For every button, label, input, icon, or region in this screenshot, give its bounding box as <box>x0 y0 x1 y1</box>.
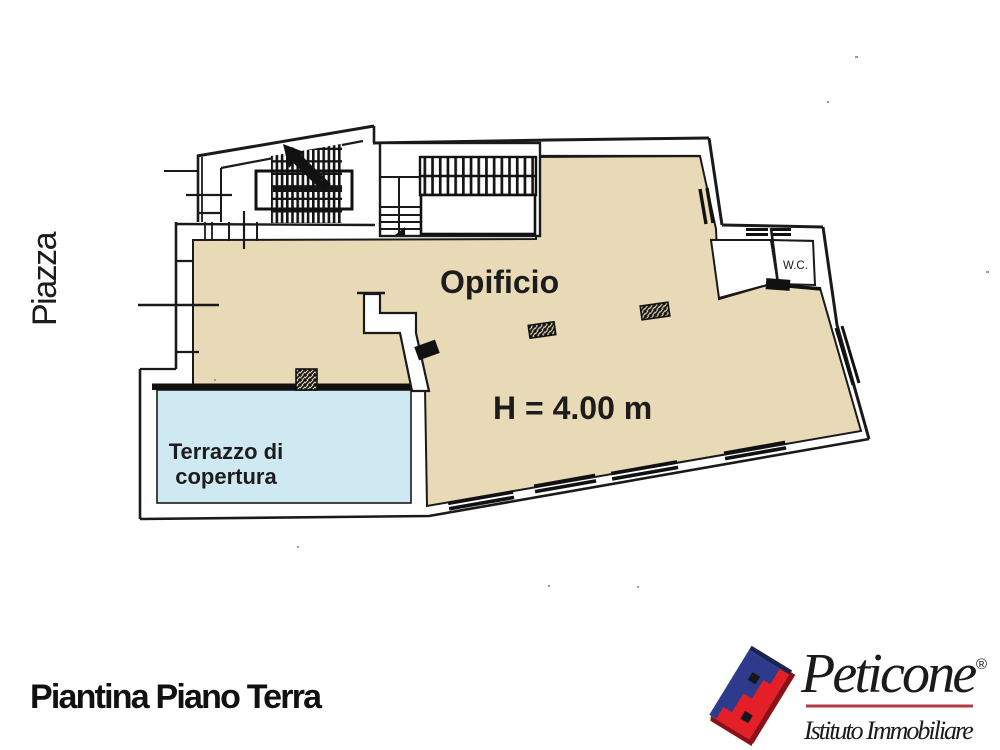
svg-text:copertura: copertura <box>175 464 277 489</box>
svg-text:®: ® <box>976 656 987 673</box>
svg-text:Piantina Piano Terra: Piantina Piano Terra <box>30 678 323 716</box>
svg-text:Istituto Immobiliare: Istituto Immobiliare <box>803 716 973 745</box>
svg-text:Piazza: Piazza <box>26 231 64 326</box>
svg-text:H = 4.00 m: H = 4.00 m <box>493 390 652 426</box>
svg-text:Opificio: Opificio <box>440 264 559 300</box>
svg-text:Peticone: Peticone <box>800 643 976 705</box>
svg-text:W.C.: W.C. <box>783 260 808 272</box>
svg-text:Terrazzo di: Terrazzo di <box>169 439 284 464</box>
